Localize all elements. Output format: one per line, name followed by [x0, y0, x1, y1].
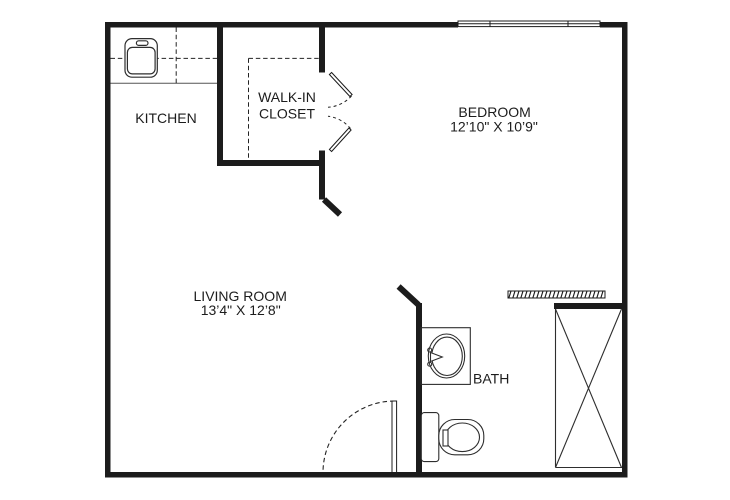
svg-text:12’10" X 10’9": 12’10" X 10’9" [450, 118, 538, 134]
svg-text:BATH: BATH [473, 370, 509, 386]
svg-text:KITCHEN: KITCHEN [135, 110, 196, 126]
svg-text:WALK-IN: WALK-IN [258, 89, 316, 105]
svg-text:CLOSET: CLOSET [259, 105, 315, 121]
svg-text:13’4" X 12’8": 13’4" X 12’8" [201, 302, 281, 318]
